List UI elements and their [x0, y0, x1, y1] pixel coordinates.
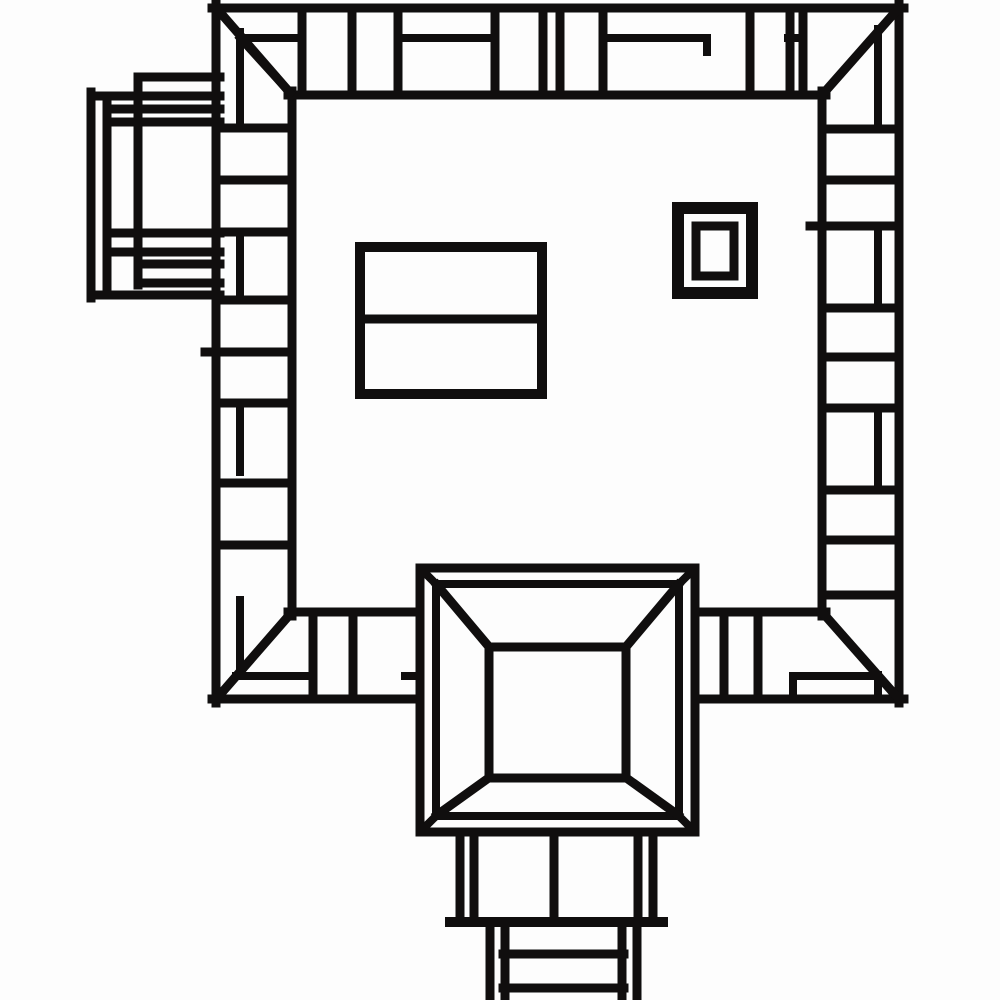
screenshot-root — [0, 0, 1000, 1000]
frame-corner-offset-diagonals — [219, 38, 290, 696]
left-annex — [91, 77, 220, 298]
small-double-square-shape — [696, 226, 734, 276]
frame-corner-miters-shape — [822, 10, 897, 95]
top-wall-dividers — [302, 8, 803, 95]
frame-inner-edge — [288, 91, 826, 616]
gate-pyramid-roof — [420, 568, 695, 832]
inner-hall-rectangle — [360, 247, 542, 394]
frame-corner-miters-shape — [822, 612, 897, 697]
small-double-square — [678, 208, 752, 293]
technical-drawing — [0, 0, 1000, 1000]
frame-corner-offset-diagonals-shape — [240, 38, 290, 93]
top-wall-midlines — [246, 38, 803, 52]
gate-tower-base — [450, 832, 663, 998]
